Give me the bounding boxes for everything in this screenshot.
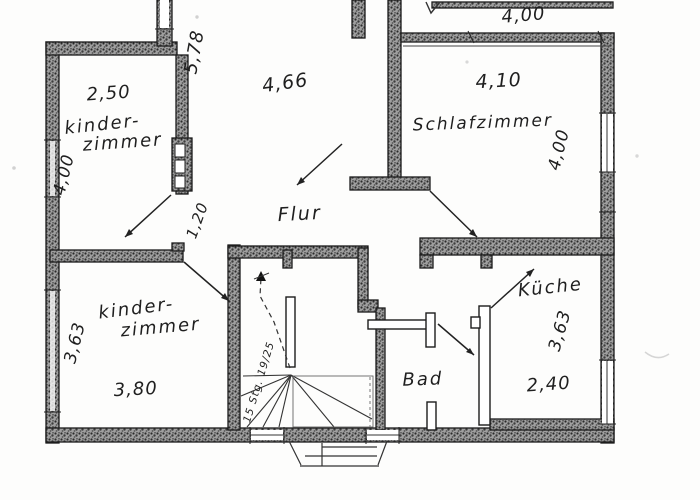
wall-kueche-sill <box>490 419 614 430</box>
dim-hall-depth: 5,78 <box>180 29 208 76</box>
jamb-kueche-door <box>481 255 492 268</box>
label-flur: Flur <box>277 202 322 226</box>
wall-bad-top <box>368 320 428 329</box>
dim-schlaf-depth: 4,00 <box>544 127 574 172</box>
wall-schlaf-top <box>401 33 614 42</box>
stair-landing <box>293 376 373 427</box>
window-kz2-left <box>50 291 55 411</box>
jamb-bad-door <box>426 313 435 347</box>
label-schlafzimmer: Schlafzimmer <box>412 111 553 136</box>
wall-stair-jog <box>358 300 378 312</box>
door-kz2 <box>184 262 229 301</box>
wall-stair-left <box>228 245 240 430</box>
wall-stair-right-upper <box>358 248 368 308</box>
entrance-steps <box>289 441 387 466</box>
chimney-flues <box>175 144 185 188</box>
wall-stair-top <box>228 246 368 258</box>
dim-kueche-depth: 3,63 <box>545 308 576 354</box>
jamb-flur-left <box>420 255 433 268</box>
interior-walls <box>286 297 490 430</box>
dim-kz2-depth: 3,63 <box>60 320 90 365</box>
label-kueche: Küche <box>517 274 584 302</box>
scanned-floor-plan: 2,50 kinder- zimmer 4,00 5,78 4,66 4,00 … <box>0 0 700 500</box>
window-top-stub <box>160 0 169 28</box>
dim-kueche-width: 2,40 <box>526 373 571 397</box>
dim-balcony-width: 4,00 <box>501 3 547 28</box>
stair-handrail <box>286 297 295 367</box>
dim-kz1-width: 2,50 <box>86 82 131 106</box>
staircase <box>241 271 373 427</box>
door-wohnraum <box>297 144 342 185</box>
floor-plan-drawing: 2,50 kinder- zimmer 4,00 5,78 4,66 4,00 … <box>0 0 700 500</box>
wall-schlaf-left <box>388 0 401 178</box>
stub-bad-frame <box>471 317 480 328</box>
dim-hall-width: 4,66 <box>261 69 310 97</box>
dim-schlaf-width: 4,10 <box>475 69 522 93</box>
stub-bad-bottom <box>427 402 436 430</box>
label-bad: Bad <box>402 368 444 390</box>
jamb-stair-top <box>283 250 292 268</box>
door-schlafzimmer <box>430 191 477 237</box>
door-kz1 <box>125 195 171 237</box>
labels: 2,50 kinder- zimmer 4,00 5,78 4,66 4,00 … <box>49 3 584 424</box>
label-kinderzimmer-top-2: zimmer <box>81 129 163 156</box>
wall-kz2-top <box>50 250 183 262</box>
dim-kz2-width: 3,80 <box>113 378 158 401</box>
wall-schlaf-bottom <box>420 238 614 255</box>
wall-top-stub-mid <box>352 0 365 38</box>
dim-flur-passage: 1,20 <box>182 200 212 241</box>
jamb-kz2-door <box>172 243 184 251</box>
wall-flur-stub <box>350 177 430 190</box>
